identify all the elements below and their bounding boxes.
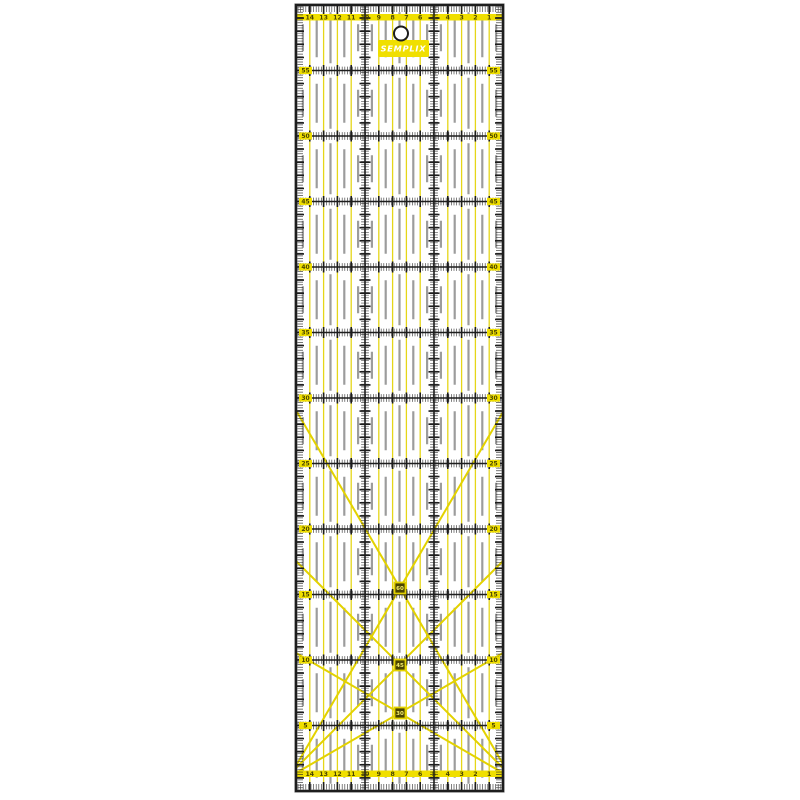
brand-logo-text: SEMPLIX: [381, 44, 427, 54]
top-scale-number: 6: [418, 14, 422, 21]
row-label-left-text: 55: [301, 67, 309, 74]
top-scale-number: 7: [404, 14, 408, 21]
row-label-right-text: 25: [489, 460, 497, 467]
row-label-right-text: 5: [491, 722, 495, 729]
bottom-scale-number: 12: [333, 771, 342, 778]
product-photo-quilting-ruler: 5555505045454040353530302525202015151010…: [0, 0, 800, 800]
row-label-left-text: 45: [301, 198, 309, 205]
bottom-scale-number: 7: [404, 771, 408, 778]
row-label-right-text: 10: [489, 657, 497, 664]
top-scale-number: 12: [333, 14, 342, 21]
row-label-left-text: 35: [301, 329, 309, 336]
row-label-right-text: 15: [489, 591, 497, 598]
bottom-scale-number: 13: [319, 771, 328, 778]
row-label-right-text: 20: [489, 526, 497, 533]
top-scale-number: 10: [361, 14, 370, 21]
row-label-left-text: 15: [301, 591, 309, 598]
row-label-left-text: 40: [301, 264, 309, 271]
angle-marker-text: 60: [396, 586, 404, 592]
row-label-left-text: 20: [301, 526, 309, 533]
row-label-right-text: 45: [489, 198, 497, 205]
top-scale-number: 3: [459, 14, 463, 21]
brand-logo: SEMPLIX: [378, 40, 429, 57]
row-label-left-text: 10: [301, 657, 309, 664]
bottom-scale-number: 5: [432, 771, 436, 778]
top-scale-number: 14: [305, 14, 314, 21]
top-scale-number: 11: [347, 14, 356, 21]
angle-marker-45: 45: [395, 660, 406, 671]
bottom-scale-number: 11: [347, 771, 356, 778]
bottom-scale-number: 8: [390, 771, 394, 778]
top-scale-number: 1: [487, 14, 491, 21]
bottom-scale-number: 2: [473, 771, 477, 778]
bottom-scale-number: 1: [487, 771, 491, 778]
top-scale-number: 9: [377, 14, 381, 21]
row-label-left-text: 50: [301, 133, 309, 140]
top-scale-number: 4: [446, 14, 451, 21]
bottom-scale-number: 4: [446, 771, 451, 778]
bottom-scale-number: 3: [459, 771, 463, 778]
angle-marker-30: 30: [395, 708, 406, 719]
quilting-ruler: 5555505045454040353530302525202015151010…: [0, 0, 800, 800]
row-label-right-text: 40: [489, 264, 497, 271]
top-scale-number: 2: [473, 14, 477, 21]
angle-marker-60: 60: [395, 583, 406, 594]
angle-marker-text: 30: [396, 711, 404, 717]
row-label-right-text: 30: [489, 395, 497, 402]
row-label-left-text: 30: [301, 395, 309, 402]
row-label-left-text: 5: [303, 722, 307, 729]
row-label-left-text: 25: [301, 460, 309, 467]
bottom-scale-number: 6: [418, 771, 422, 778]
row-label-right-text: 55: [489, 67, 497, 74]
top-scale-number: 5: [432, 14, 436, 21]
bottom-scale-number: 10: [361, 771, 370, 778]
row-label-right-text: 35: [489, 329, 497, 336]
bottom-scale-number: 9: [377, 771, 381, 778]
hanging-hole: [394, 27, 408, 41]
row-label-right-text: 50: [489, 133, 497, 140]
angle-marker-text: 45: [396, 663, 404, 669]
top-scale-number: 13: [319, 14, 328, 21]
top-scale-number: 8: [390, 14, 394, 21]
bottom-scale-number: 14: [305, 771, 314, 778]
